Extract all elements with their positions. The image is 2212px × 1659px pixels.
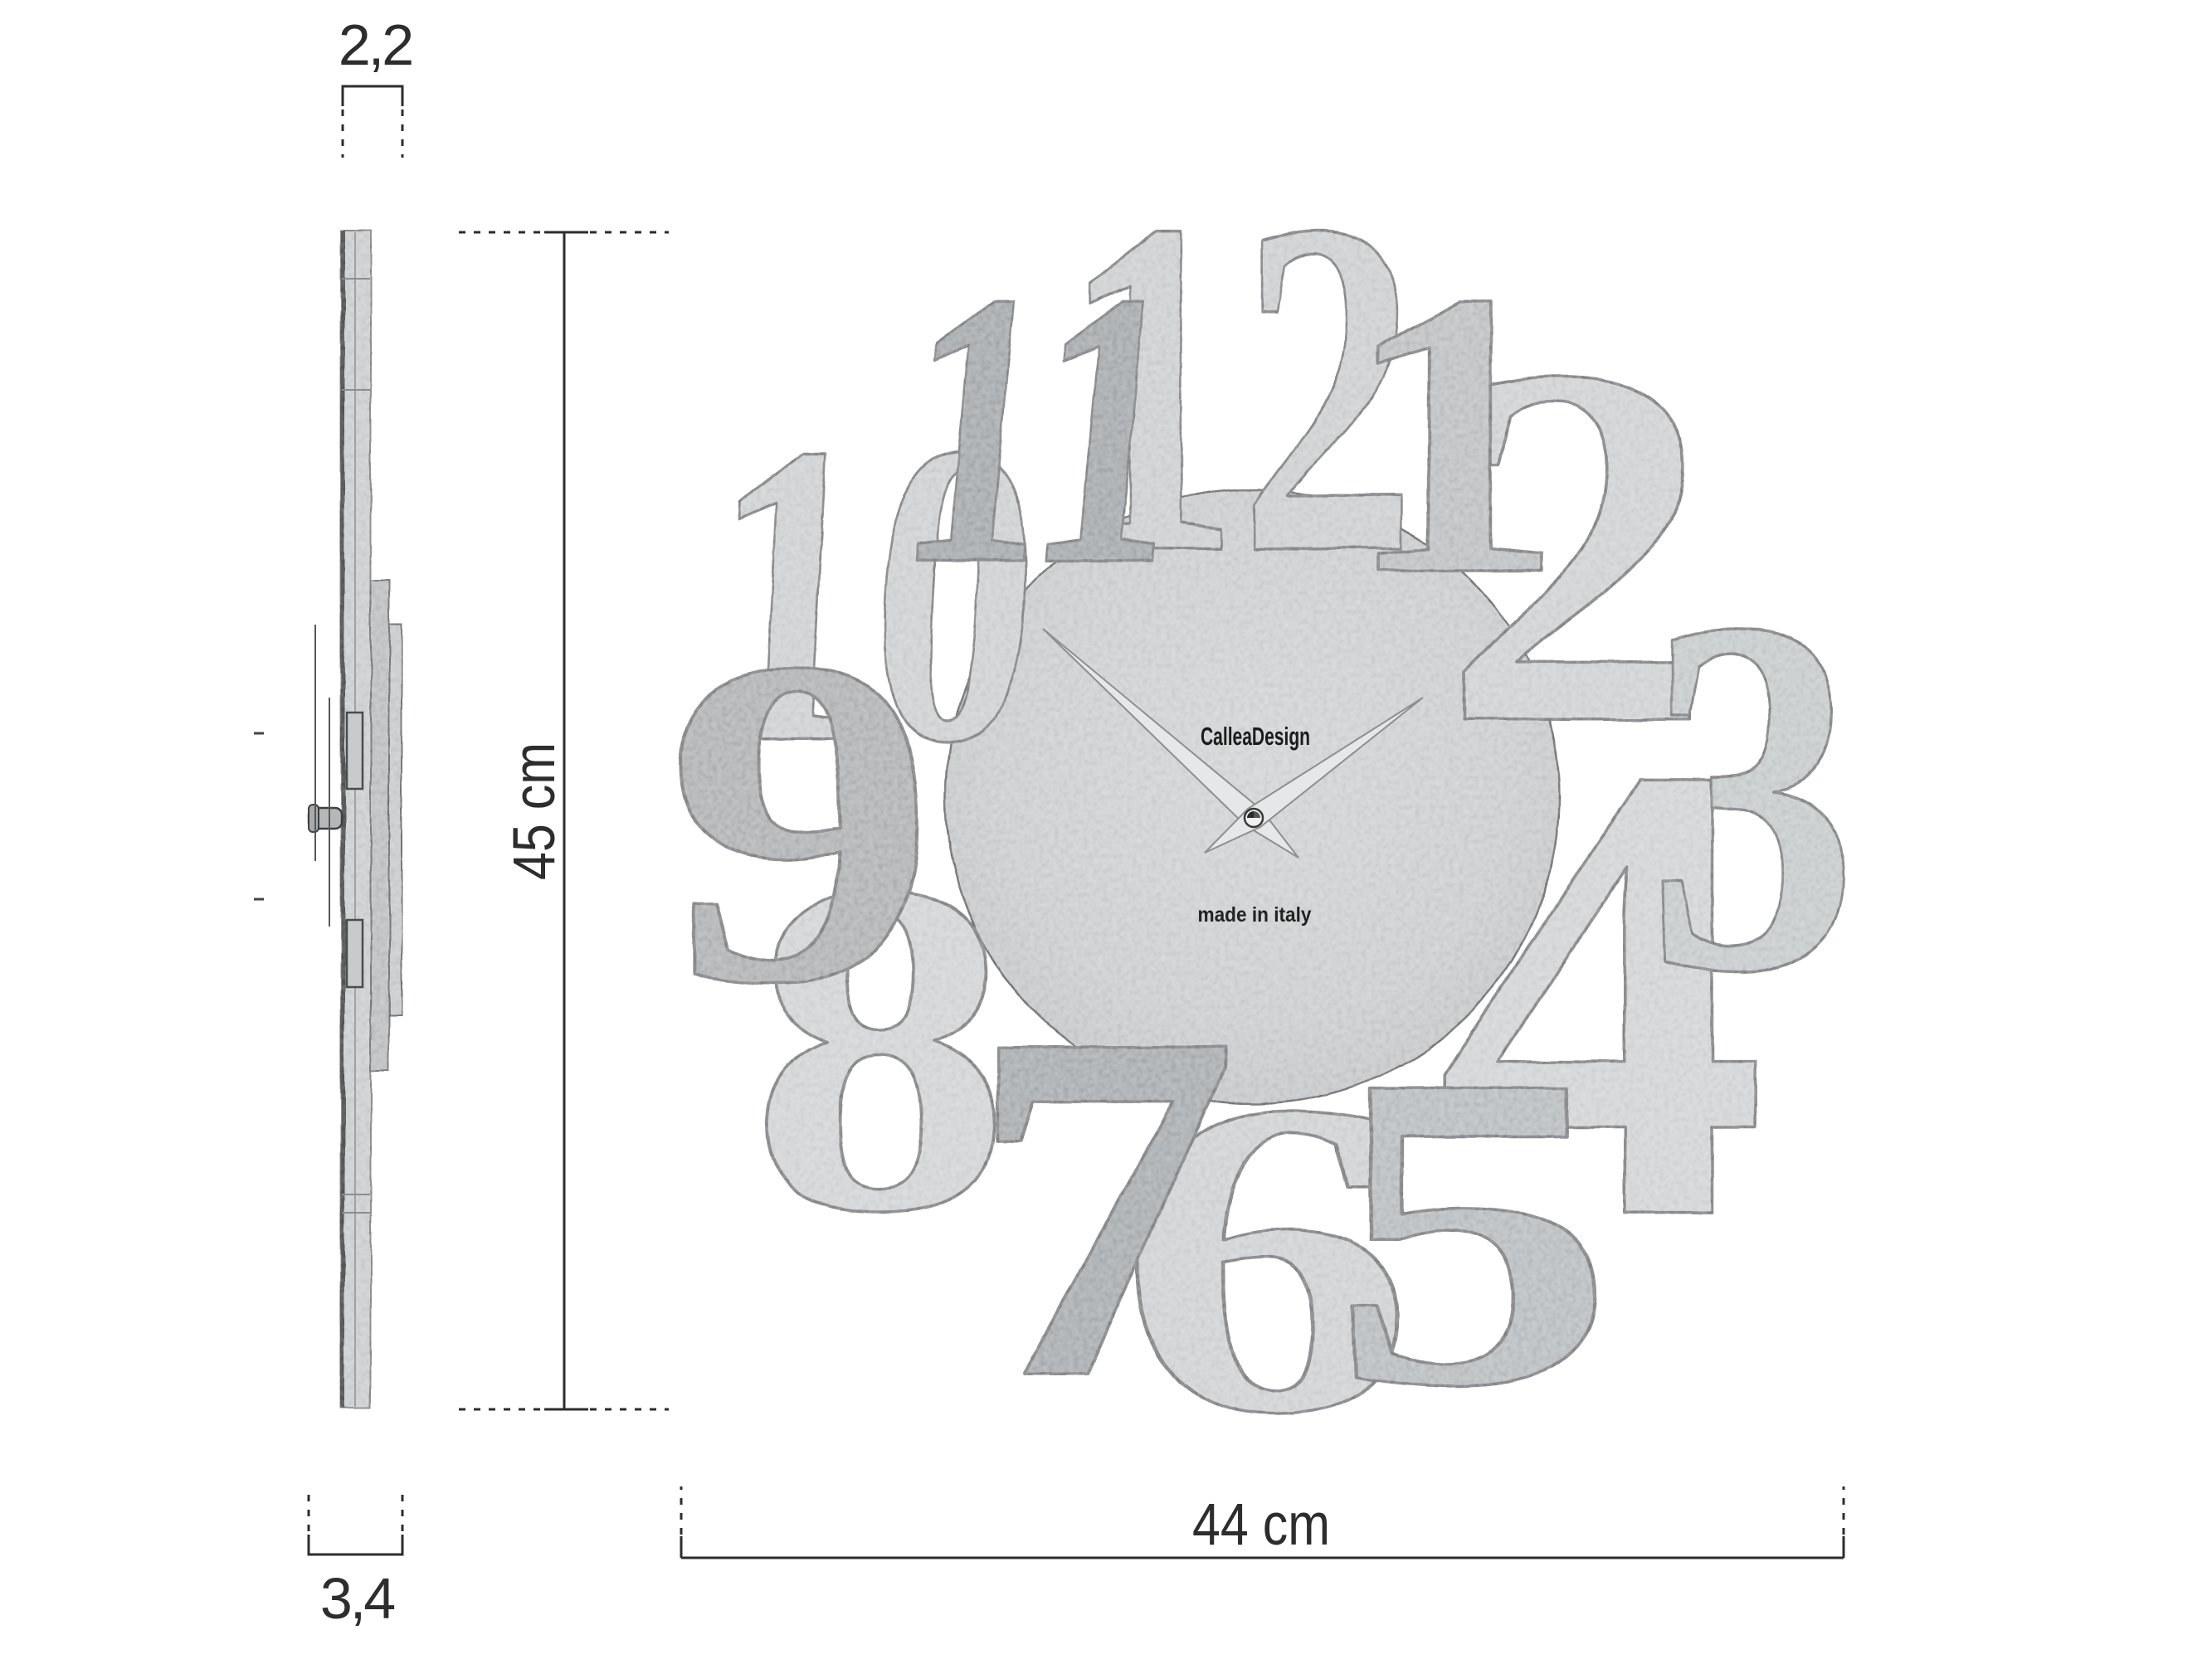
svg-text:made in italy: made in italy	[1198, 903, 1312, 927]
svg-text:3,4: 3,4	[320, 1566, 394, 1631]
svg-text:2,2: 2,2	[339, 12, 412, 77]
svg-text:1: 1	[1342, 208, 1565, 659]
svg-text:3: 3	[1647, 513, 1859, 1078]
svg-text:11: 11	[885, 211, 1201, 646]
svg-text:7: 7	[967, 931, 1239, 1482]
svg-text:5: 5	[1329, 982, 1615, 1479]
svg-text:44 cm: 44 cm	[1192, 1492, 1330, 1558]
svg-text:45 cm: 45 cm	[502, 742, 568, 880]
svg-text:CalleaDesign: CalleaDesign	[1201, 722, 1310, 751]
